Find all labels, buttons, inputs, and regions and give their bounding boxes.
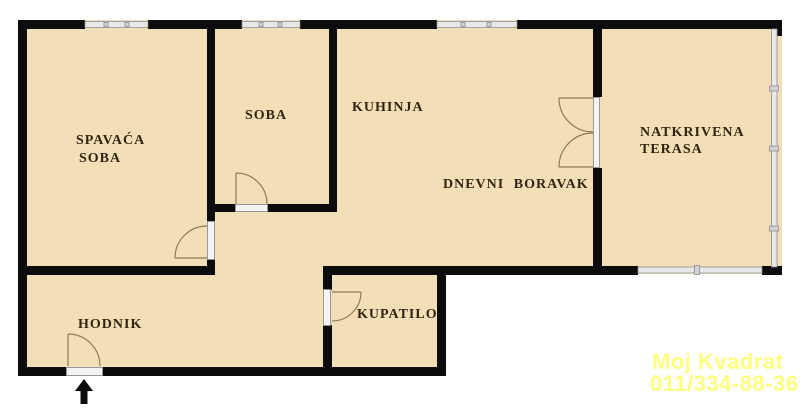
wall-soba-kitchen-divider [329, 20, 337, 212]
label-spavaca-soba-line2: SOBA [79, 151, 121, 166]
label-dnevni-boravak: DNEVNI BORAVAK [443, 177, 589, 192]
window-tick [259, 23, 263, 27]
wall-top-seg4 [517, 20, 782, 29]
label-spavaca-soba-line1: SPAVAĆA [76, 131, 145, 148]
window-tick [104, 23, 108, 27]
wall-hodnik-top [18, 266, 215, 275]
label-natkrivena-terasa-line2: TERASA [640, 142, 703, 157]
wall-terrace-divider-upper [593, 20, 602, 97]
small-room-window [242, 22, 300, 28]
entrance-arrow [75, 379, 93, 404]
wall-bottom-seg2 [103, 367, 446, 376]
label-kuhinja: KUHINJA [352, 100, 424, 115]
small-room-door-sill [236, 205, 268, 212]
wall-bathroom-left-upper [323, 266, 332, 290]
bedroom-door-sill [208, 222, 215, 260]
bedroom-window [85, 22, 148, 28]
wall-bedroom-divider-lower [207, 259, 215, 275]
glazing-tick [770, 86, 779, 91]
label-hodnik: HODNIK [78, 317, 142, 332]
watermark: Moj Kvadrat 011/334-88-36 [650, 349, 798, 396]
terrace-front-railing [638, 267, 762, 273]
bathroom-door-sill [324, 290, 331, 326]
wall-top-seg2 [148, 20, 242, 29]
entrance-arrow-shape [75, 379, 93, 404]
glazing-tick [770, 146, 779, 151]
wall-bathroom-left-lower [323, 325, 332, 376]
wall-soba-bottom-seg1 [207, 204, 235, 212]
wall-living-bottom [323, 266, 638, 275]
window-tick [125, 23, 129, 27]
wall-terrace-divider-lower [593, 168, 602, 275]
wall-bedroom-divider-upper [207, 20, 215, 221]
wall-bathroom-right [437, 266, 446, 376]
window-tick [487, 23, 491, 27]
label-soba: SOBA [245, 108, 287, 123]
wall-soba-bottom-seg2 [268, 204, 337, 212]
label-kupatilo: KUPATILO [357, 307, 438, 322]
floor-plan-canvas: SPAVAĆA SOBA SOBA KUHINJA DNEVNI BORAVAK… [0, 0, 800, 410]
wall-left [18, 20, 27, 376]
entrance-door-sill [67, 368, 103, 376]
window-tick [461, 23, 465, 27]
terrace-door-sill [594, 98, 600, 168]
wall-bottom-seg1 [18, 367, 66, 376]
kitchen-window [437, 22, 517, 28]
watermark-line2: 011/334-88-36 [650, 371, 798, 396]
railing-tick [695, 266, 700, 275]
wall-top-seg3 [300, 20, 437, 29]
label-natkrivena-terasa-line1: NATKRIVENA [640, 125, 745, 140]
window-tick [278, 23, 282, 27]
floor-plan: SPAVAĆA SOBA SOBA KUHINJA DNEVNI BORAVAK… [0, 0, 800, 410]
glazing-tick [770, 226, 779, 231]
wall-top-seg1 [18, 20, 85, 29]
